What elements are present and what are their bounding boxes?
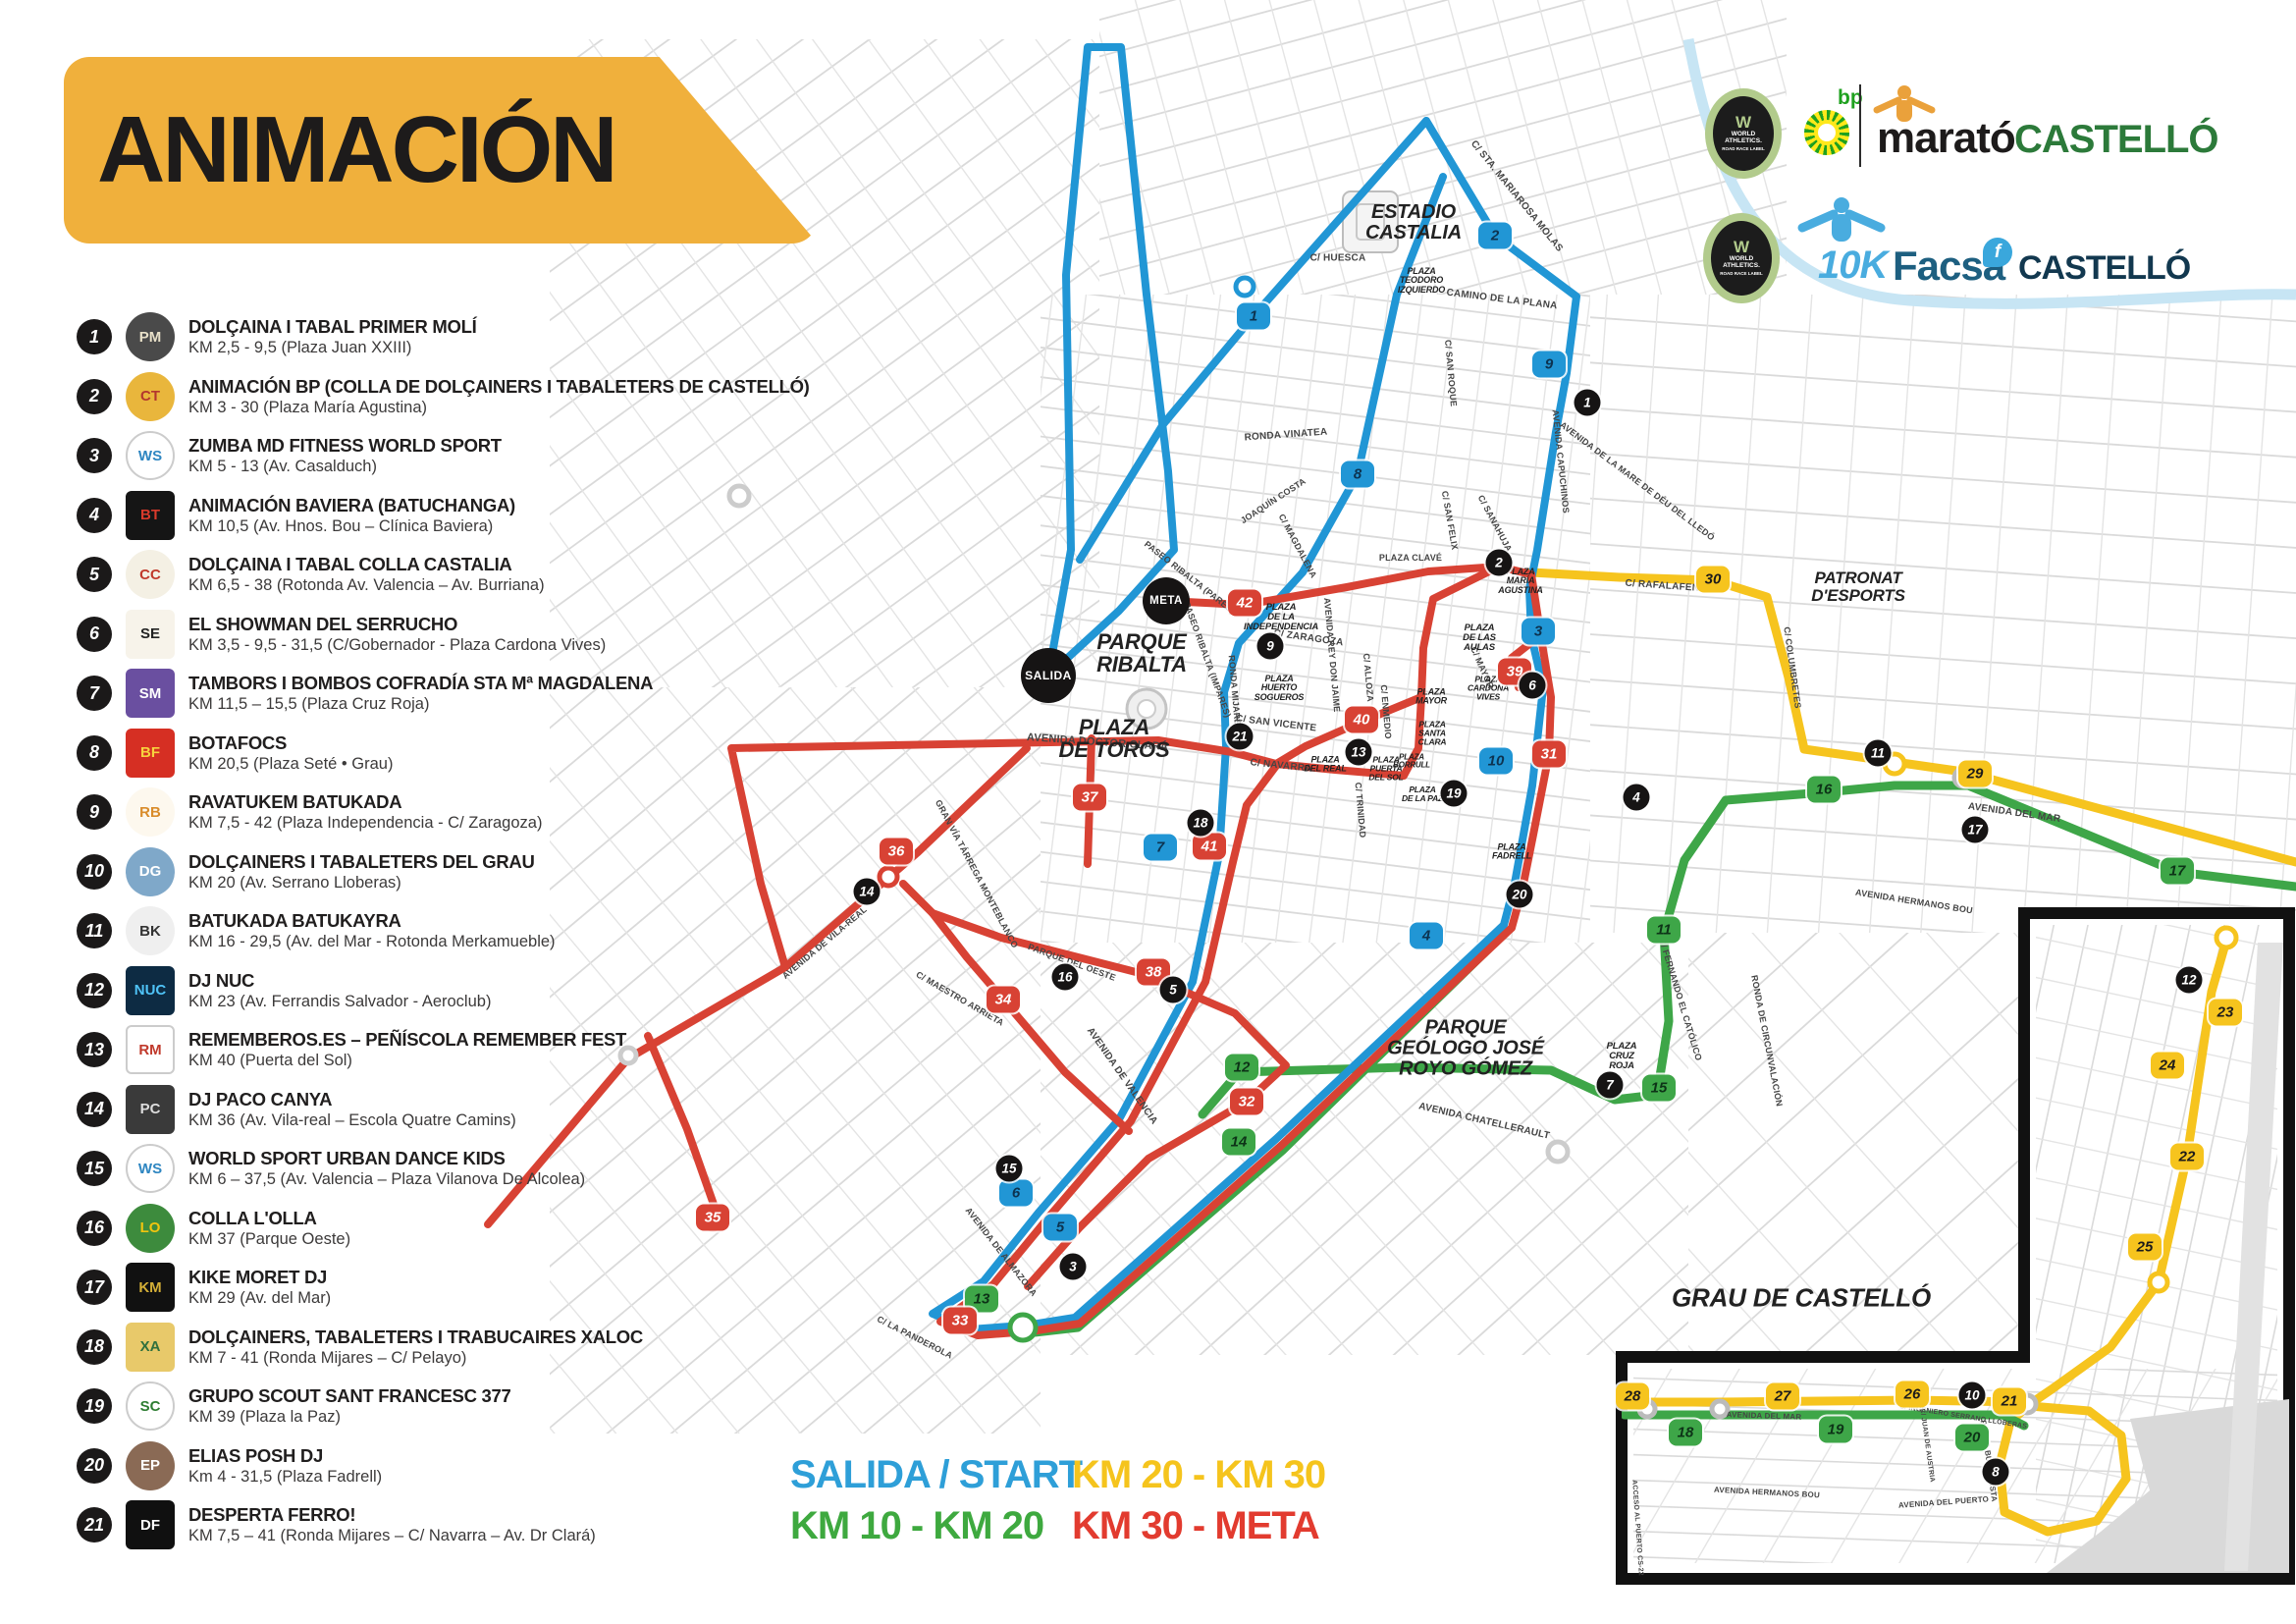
legend-item-desc: KM 29 (Av. del Mar) (188, 1289, 331, 1308)
10k-wordmark: 10K (1818, 244, 1887, 288)
km-marker: 22 (2170, 1144, 2204, 1170)
legend-km30-meta: KM 30 - META (1072, 1504, 1319, 1548)
legend-item-18: 18XADOLÇAINERS, TABALETERS I TRABUCAIRES… (77, 1320, 643, 1375)
legend-item-number: 3 (77, 438, 112, 473)
animation-point-marker: 1 (1575, 390, 1601, 416)
km-marker: 21 (1993, 1388, 2026, 1415)
km-marker: 4 (1410, 923, 1443, 949)
legend-item-number: 12 (77, 973, 112, 1008)
animation-point-marker: 13 (1346, 739, 1372, 766)
km-marker: 27 (1766, 1383, 1799, 1410)
legend-item-desc: Km 4 - 31,5 (Plaza Fadrell) (188, 1468, 382, 1487)
animation-point-marker: 12 (2176, 967, 2203, 994)
roundabout (1548, 1142, 1568, 1162)
km-marker: 33 (943, 1308, 977, 1334)
legend-item-19: 19SCGRUPO SCOUT SANT FRANCESC 377KM 39 (… (77, 1379, 510, 1434)
legend-item-number: 18 (77, 1329, 112, 1365)
legend-start: SALIDA / START (790, 1453, 1082, 1497)
km-marker: 31 (1532, 741, 1566, 768)
legend-item-3: 3WSZUMBA MD FITNESS WORLD SPORTKM 5 - 13… (77, 428, 502, 483)
legend-item-desc: KM 20,5 (Plaza Seté • Grau) (188, 755, 393, 774)
legend-item-desc: KM 36 (Av. Vila-real – Escola Quatre Cam… (188, 1111, 516, 1130)
place-label: PLAZA MAYOR (1415, 688, 1447, 707)
legend-item-title: RAVATUKEM BATUKADA (188, 791, 542, 813)
legend-item-logo-icon: EP (126, 1441, 175, 1490)
place-label: PARQUE RIBALTA (1096, 630, 1187, 676)
km-marker: 6 (999, 1180, 1033, 1207)
km-marker: 41 (1193, 834, 1226, 860)
km-marker: 2 (1478, 223, 1512, 249)
animation-route-poster: C/ HUESCACAMINO DE LA PLANAC/ STA. MARIA… (0, 0, 2296, 1624)
km-marker: 7 (1144, 835, 1177, 861)
legend-item-15: 15WSWORLD SPORT URBAN DANCE KIDSKM 6 – 3… (77, 1141, 585, 1196)
roundabout (2216, 928, 2236, 947)
legend-item-16: 16LOCOLLA L'OLLAKM 37 (Parque Oeste) (77, 1201, 350, 1256)
place-label: PARQUE GEÓLOGO JOSÉ ROYO GÓMEZ (1387, 1018, 1544, 1080)
km-marker: 37 (1073, 785, 1106, 811)
animation-point-marker: 5 (1160, 977, 1187, 1003)
street-label: PLAZA CLAVÉ (1379, 553, 1442, 563)
place-label: PLAZA SANTA CLARA (1418, 721, 1447, 747)
animation-point-marker: 18 (1188, 810, 1214, 837)
route-red (648, 1036, 717, 1213)
legend-item-title: EL SHOWMAN DEL SERRUCHO (188, 614, 606, 635)
legend-item-logo-icon: NUC (126, 966, 175, 1015)
legend-item-number: 20 (77, 1448, 112, 1484)
legend-item-title: DOLÇAINERS, TABALETERS I TRABUCAIRES XAL… (188, 1326, 643, 1348)
legend-item-desc: KM 6,5 - 38 (Rotonda Av. Valencia – Av. … (188, 576, 545, 595)
km-marker: 1 (1237, 303, 1270, 330)
animation-point-marker: 21 (1227, 724, 1254, 750)
legend-item-logo-icon: PM (126, 312, 175, 361)
km-marker: 20 (1955, 1425, 1989, 1451)
legend-item-number: 14 (77, 1092, 112, 1127)
legend-km10-20: KM 10 - KM 20 (790, 1504, 1043, 1548)
world-athletics-badge-icon: W WORLD ATHLETICS. ROAD RACE LABEL (1705, 88, 1782, 179)
km-marker: 10 (1479, 748, 1513, 775)
legend-item-desc: KM 40 (Puerta del Sol) (188, 1052, 626, 1070)
legend-item-desc: KM 6 – 37,5 (Av. Valencia – Plaza Vilano… (188, 1170, 585, 1189)
bp-flower-icon (1804, 110, 1849, 155)
place-label: GRAU DE CASTELLÓ (1672, 1284, 1931, 1311)
roundabout (1236, 278, 1254, 296)
km-marker: 40 (1345, 707, 1378, 733)
animation-point-marker: 7 (1597, 1072, 1624, 1099)
legend-item-13: 13RMREMEMBEROS.ES – PEÑÍSCOLA REMEMBER F… (77, 1022, 626, 1077)
legend-item-2: 2CTANIMACIÓN BP (COLLA DE DOLÇAINERS I T… (77, 369, 810, 424)
legend-item-number: 1 (77, 319, 112, 354)
legend-item-desc: KM 5 - 13 (Av. Casalduch) (188, 458, 502, 476)
km-marker: 18 (1669, 1420, 1702, 1446)
legend-item-14: 14PCDJ PACO CANYAKM 36 (Av. Vila-real – … (77, 1082, 516, 1137)
legend-item-21: 21DFDESPERTA FERRO!KM 7,5 – 41 (Ronda Mi… (77, 1497, 596, 1552)
legend-item-10: 10DGDOLÇAINERS I TABALETERS DEL GRAUKM 2… (77, 844, 535, 899)
legend-item-title: ANIMACIÓN BP (COLLA DE DOLÇAINERS I TABA… (188, 376, 810, 398)
legend-item-title: DJ PACO CANYA (188, 1089, 516, 1110)
place-label: PATRONAT D'ESPORTS (1811, 569, 1904, 605)
legend-item-logo-icon: KM (126, 1263, 175, 1312)
legend-item-desc: KM 3,5 - 9,5 - 31,5 (C/Gobernador - Plaz… (188, 636, 606, 655)
logo-divider (1859, 84, 1861, 167)
km-marker: 8 (1341, 461, 1374, 488)
km-marker: 32 (1230, 1089, 1263, 1115)
legend-item-title: DESPERTA FERRO! (188, 1504, 596, 1526)
legend-item-title: TAMBORS I BOMBOS COFRADÍA STA Mª MAGDALE… (188, 673, 653, 694)
roundabout (880, 868, 897, 886)
km-marker: 34 (987, 987, 1020, 1013)
km-marker: 12 (1225, 1055, 1258, 1081)
legend-item-logo-icon: WS (126, 431, 175, 480)
animation-point-marker: 4 (1624, 785, 1650, 811)
legend-item-logo-icon: CT (126, 372, 175, 421)
legend-item-title: ELIAS POSH DJ (188, 1445, 382, 1467)
legend-item-logo-icon: RB (126, 787, 175, 837)
legend-item-desc: KM 7,5 – 41 (Ronda Mijares – C/ Navarra … (188, 1527, 596, 1545)
legend-item-logo-icon: SM (126, 669, 175, 718)
km-marker: 24 (2151, 1053, 2184, 1079)
legend-item-logo-icon: RM (126, 1025, 175, 1074)
legend-item-11: 11BKBATUKADA BATUKAYRAKM 16 - 29,5 (Av. … (77, 903, 556, 958)
animation-point-marker: 11 (1865, 740, 1892, 767)
legend-item-12: 12NUCDJ NUCKM 23 (Av. Ferrandis Salvador… (77, 963, 491, 1018)
km-marker: 35 (696, 1205, 729, 1231)
legend-item-17: 17KMKIKE MORET DJKM 29 (Av. del Mar) (77, 1260, 331, 1315)
legend-item-desc: KM 39 (Plaza la Paz) (188, 1408, 510, 1427)
legend-item-title: COLLA L'OLLA (188, 1208, 350, 1229)
place-label: PLAZA HUERTO SOGUEROS (1255, 675, 1304, 702)
legend-item-7: 7SMTAMBORS I BOMBOS COFRADÍA STA Mª MAGD… (77, 666, 653, 721)
finish-marker: META (1143, 577, 1190, 624)
km-marker: 42 (1228, 590, 1261, 617)
animation-point-marker: 9 (1257, 633, 1284, 660)
world-athletics-badge-icon: W WORLD ATHLETICS. ROAD RACE LABEL (1703, 213, 1780, 303)
legend-item-title: ANIMACIÓN BAVIERA (BATUCHANGA) (188, 495, 515, 516)
legend-item-number: 8 (77, 735, 112, 771)
legend-item-desc: KM 2,5 - 9,5 (Plaza Juan XXIII) (188, 339, 476, 357)
legend-item-desc: KM 11,5 – 15,5 (Plaza Cruz Roja) (188, 695, 653, 714)
legend-item-logo-icon: BF (126, 729, 175, 778)
km-marker: 36 (880, 839, 913, 865)
legend-item-number: 15 (77, 1151, 112, 1186)
place-label: PLAZA DEL REAL (1304, 756, 1346, 775)
legend-item-number: 9 (77, 794, 112, 830)
animation-point-marker: 20 (1507, 882, 1533, 908)
animation-point-marker: 10 (1959, 1382, 1986, 1409)
legend-item-title: WORLD SPORT URBAN DANCE KIDS (188, 1148, 585, 1169)
legend-km20-30: KM 20 - KM 30 (1072, 1453, 1325, 1497)
legend-item-logo-icon: CC (126, 550, 175, 599)
place-label: PLAZA FADRELL (1492, 843, 1531, 862)
animation-point-marker: 14 (854, 879, 881, 905)
start-marker: SALIDA (1021, 648, 1076, 703)
km-marker: 25 (2128, 1234, 2162, 1261)
km-marker: 15 (1642, 1075, 1676, 1102)
legend-item-number: 13 (77, 1032, 112, 1067)
legend-item-4: 4BTANIMACIÓN BAVIERA (BATUCHANGA)KM 10,5… (77, 488, 515, 543)
legend-item-logo-icon: BT (126, 491, 175, 540)
legend-item-number: 4 (77, 498, 112, 533)
legend-item-title: KIKE MORET DJ (188, 1267, 331, 1288)
facsa-drop-icon: f (1983, 238, 2012, 267)
legend-item-number: 10 (77, 854, 112, 890)
km-marker: 30 (1696, 567, 1730, 593)
legend-item-number: 11 (77, 913, 112, 948)
street-label: C/ HUESCA (1310, 253, 1366, 264)
legend-item-1: 1PMDOLÇAINA I TABAL PRIMER MOLÍKM 2,5 - … (77, 309, 476, 364)
legend-item-logo-icon: LO (126, 1204, 175, 1253)
legend-item-title: REMEMBEROS.ES – PEÑÍSCOLA REMEMBER FEST (188, 1029, 626, 1051)
legend-item-title: BATUKADA BATUKAYRA (188, 910, 556, 932)
legend-item-6: 6SEEL SHOWMAN DEL SERRUCHOKM 3,5 - 9,5 -… (77, 607, 606, 662)
km-marker: 16 (1807, 777, 1841, 803)
legend-item-logo-icon: DG (126, 847, 175, 896)
km-marker: 19 (1819, 1417, 1852, 1443)
place-label: ESTADIO CASTALIA (1365, 202, 1462, 244)
legend-item-logo-icon: WS (126, 1144, 175, 1193)
km-marker: 29 (1958, 761, 1992, 787)
place-label: PLAZA DE LAS AULAS (1463, 623, 1496, 653)
legend-item-title: DOLÇAINA I TABAL COLLA CASTALIA (188, 554, 545, 575)
page-title: ANIMACIÓN (97, 96, 615, 204)
legend-item-desc: KM 10,5 (Av. Hnos. Bou – Clínica Baviera… (188, 517, 515, 536)
legend-item-logo-icon: DF (126, 1500, 175, 1549)
animation-point-marker: 6 (1520, 673, 1546, 699)
animation-point-marker: 8 (1983, 1459, 2009, 1486)
km-marker: 28 (1616, 1383, 1649, 1410)
legend-item-logo-icon: XA (126, 1323, 175, 1372)
legend-item-number: 19 (77, 1388, 112, 1424)
legend-item-title: GRUPO SCOUT SANT FRANCESC 377 (188, 1385, 510, 1407)
place-label: PLAZA PUERTA DEL SOL (1368, 756, 1403, 783)
legend-item-title: ZUMBA MD FITNESS WORLD SPORT (188, 435, 502, 457)
legend-item-title: DOLÇAINERS I TABALETERS DEL GRAU (188, 851, 535, 873)
legend-item-9: 9RBRAVATUKEM BATUKADAKM 7,5 - 42 (Plaza … (77, 785, 542, 839)
km-marker: 17 (2161, 858, 2194, 885)
legend-item-desc: KM 37 (Parque Oeste) (188, 1230, 350, 1249)
legend-item-title: DOLÇAINA I TABAL PRIMER MOLÍ (188, 316, 476, 338)
legend-item-logo-icon: BK (126, 906, 175, 955)
legend-item-number: 16 (77, 1211, 112, 1246)
km-marker: 9 (1532, 352, 1566, 378)
legend-item-5: 5CCDOLÇAINA I TABAL COLLA CASTALIAKM 6,5… (77, 547, 545, 602)
legend-item-desc: KM 23 (Av. Ferrandis Salvador - Aeroclub… (188, 993, 491, 1011)
roundabout (1010, 1315, 1036, 1340)
marato-castello-wordmark: CASTELLÓ (2014, 118, 2218, 162)
place-label: PLAZA TEODORO IZQUIERDO (1398, 267, 1445, 295)
legend-item-number: 21 (77, 1507, 112, 1543)
legend-item-title: DJ NUC (188, 970, 491, 992)
legend-item-number: 17 (77, 1270, 112, 1305)
legend-item-number: 7 (77, 676, 112, 711)
legend-item-number: 6 (77, 617, 112, 652)
legend-item-logo-icon: PC (126, 1085, 175, 1134)
legend-item-desc: KM 7 - 41 (Ronda Mijares – C/ Pelayo) (188, 1349, 643, 1368)
facsa-runner-icon (1792, 196, 1891, 244)
marato-wordmark: marató (1877, 114, 2015, 163)
legend-item-title: BOTAFOCS (188, 732, 393, 754)
animation-point-marker: 15 (996, 1156, 1023, 1182)
place-label: PLAZA DE LA PAZ (1402, 785, 1443, 803)
legend-item-desc: KM 7,5 - 42 (Plaza Independencia - C/ Za… (188, 814, 542, 833)
km-marker: 3 (1522, 619, 1555, 645)
animation-point-marker: 3 (1060, 1254, 1087, 1280)
legend-item-number: 5 (77, 557, 112, 592)
legend-item-logo-icon: SC (126, 1381, 175, 1431)
legend-item-number: 2 (77, 379, 112, 414)
animation-point-marker: 17 (1962, 817, 1989, 843)
km-marker: 26 (1896, 1381, 1929, 1408)
facsa-castello-wordmark: CASTELLÓ (2018, 249, 2190, 288)
legend-item-logo-icon: SE (126, 610, 175, 659)
km-marker: 23 (2209, 1000, 2242, 1026)
animation-point-marker: 19 (1441, 781, 1468, 807)
legend-item-desc: KM 16 - 29,5 (Av. del Mar - Rotonda Merk… (188, 933, 556, 951)
animation-point-marker: 16 (1052, 964, 1079, 991)
legend-item-20: 20EPELIAS POSH DJKm 4 - 31,5 (Plaza Fadr… (77, 1438, 382, 1493)
legend-item-desc: KM 20 (Av. Serrano Lloberas) (188, 874, 535, 893)
roundabout (1712, 1401, 1728, 1417)
km-marker: 14 (1222, 1129, 1255, 1156)
place-label: PLAZA CRUZ ROJA (1607, 1042, 1637, 1071)
km-marker: 5 (1043, 1215, 1077, 1241)
km-marker: 11 (1647, 917, 1681, 944)
roundabout (2150, 1273, 2167, 1291)
legend-item-8: 8BFBOTAFOCSKM 20,5 (Plaza Seté • Grau) (77, 726, 393, 781)
place-label: PLAZA DE TOROS (1059, 716, 1170, 761)
animation-point-marker: 2 (1486, 550, 1513, 576)
legend-item-desc: KM 3 - 30 (Plaza María Agustina) (188, 399, 810, 417)
roundabout (729, 486, 749, 506)
